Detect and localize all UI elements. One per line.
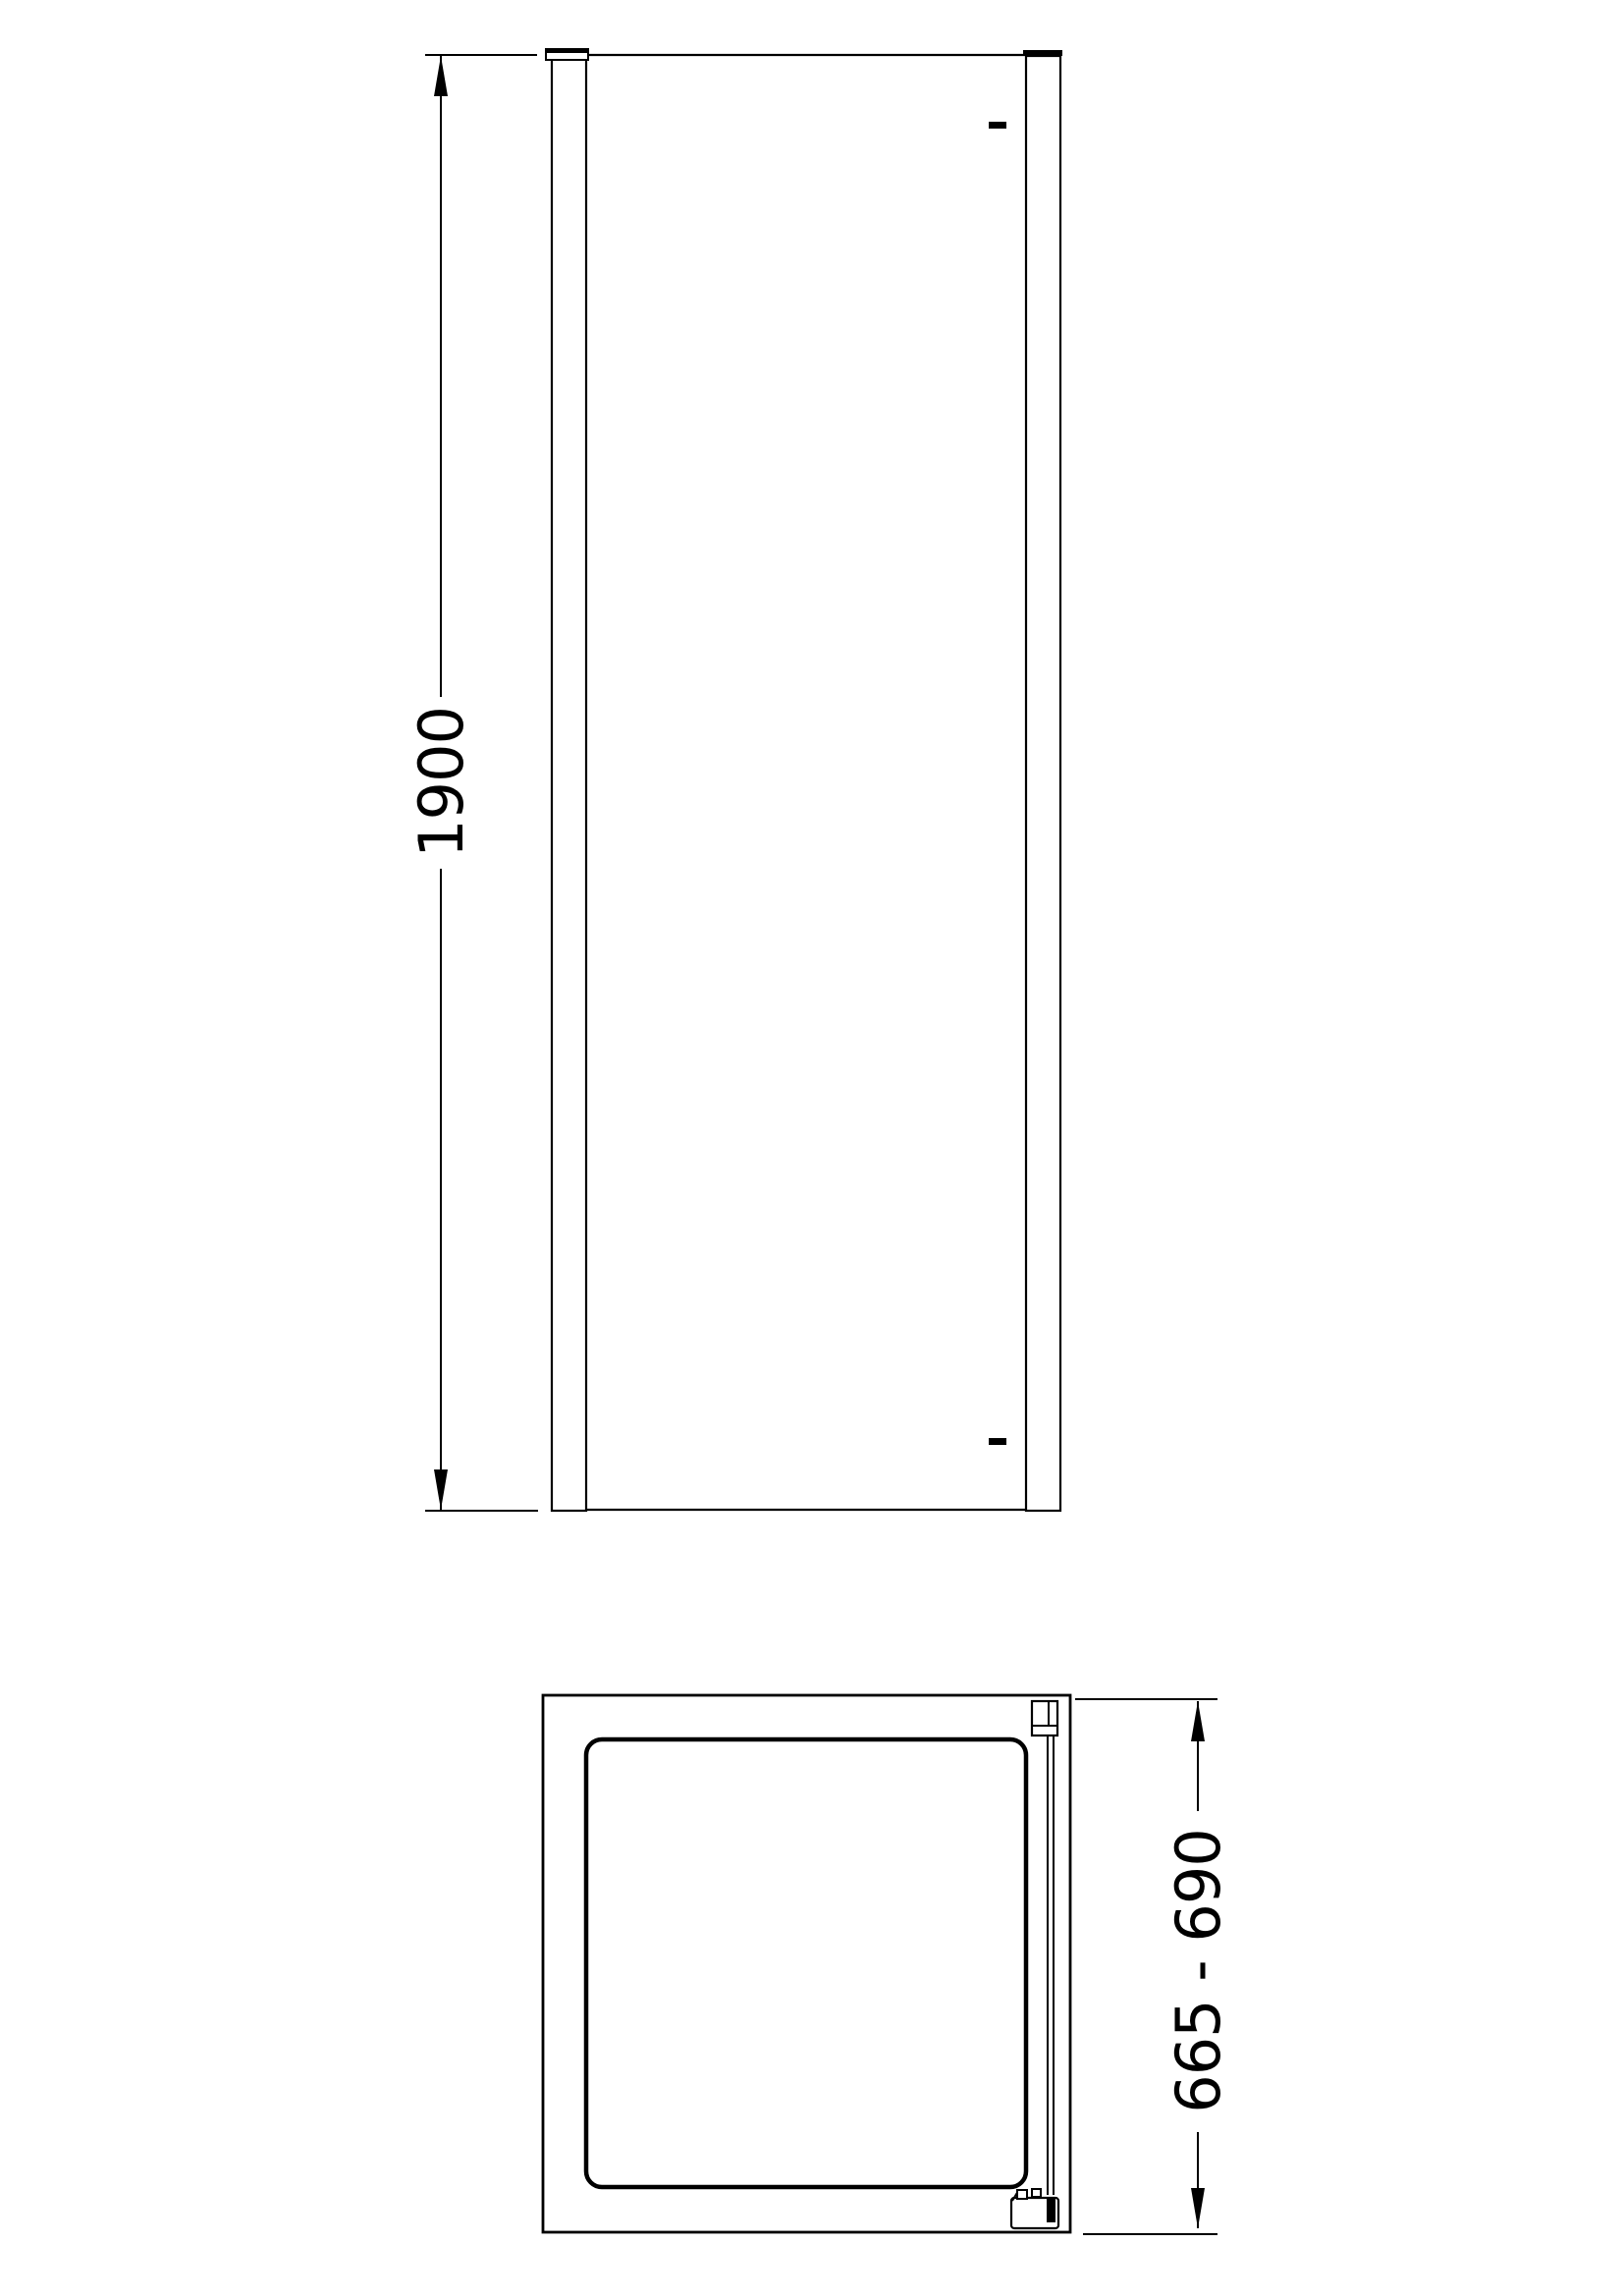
wall-profile-bottom-lug-left [1017,2190,1027,2199]
bracket-marker-top [989,122,1006,129]
depth-dimension: 665 - 690 [1075,1699,1234,2234]
technical-drawing-canvas: 1900 [0,0,1623,2296]
drawing-svg: 1900 [0,0,1623,2296]
elevation-view: 1900 [406,49,1062,1511]
height-dimension-label: 1900 [406,707,477,858]
right-frame-profile [1026,56,1060,1511]
bracket-marker-bottom [989,1438,1006,1445]
depth-dimension-label: 665 - 690 [1163,1829,1234,2112]
arrowhead-down-icon [434,1469,448,1510]
plan-view: 665 - 690 [543,1695,1234,2234]
right-frame-cap [1023,50,1062,56]
left-frame-profile [552,56,586,1511]
wall-profile-top-body [1032,1701,1057,1735]
arrowhead-down-icon [1191,2188,1205,2228]
height-dimension: 1900 [406,55,538,1511]
wall-profile-bottom-lug-right [1032,2189,1041,2197]
wall-profile-bottom-clamp [1047,2199,1055,2222]
left-frame-cap-top [546,49,588,53]
arrowhead-up-icon [1191,1701,1205,1741]
arrowhead-up-icon [434,56,448,96]
wall-profile-top [1032,1701,1057,1735]
shower-tray-outline [586,1739,1026,2187]
